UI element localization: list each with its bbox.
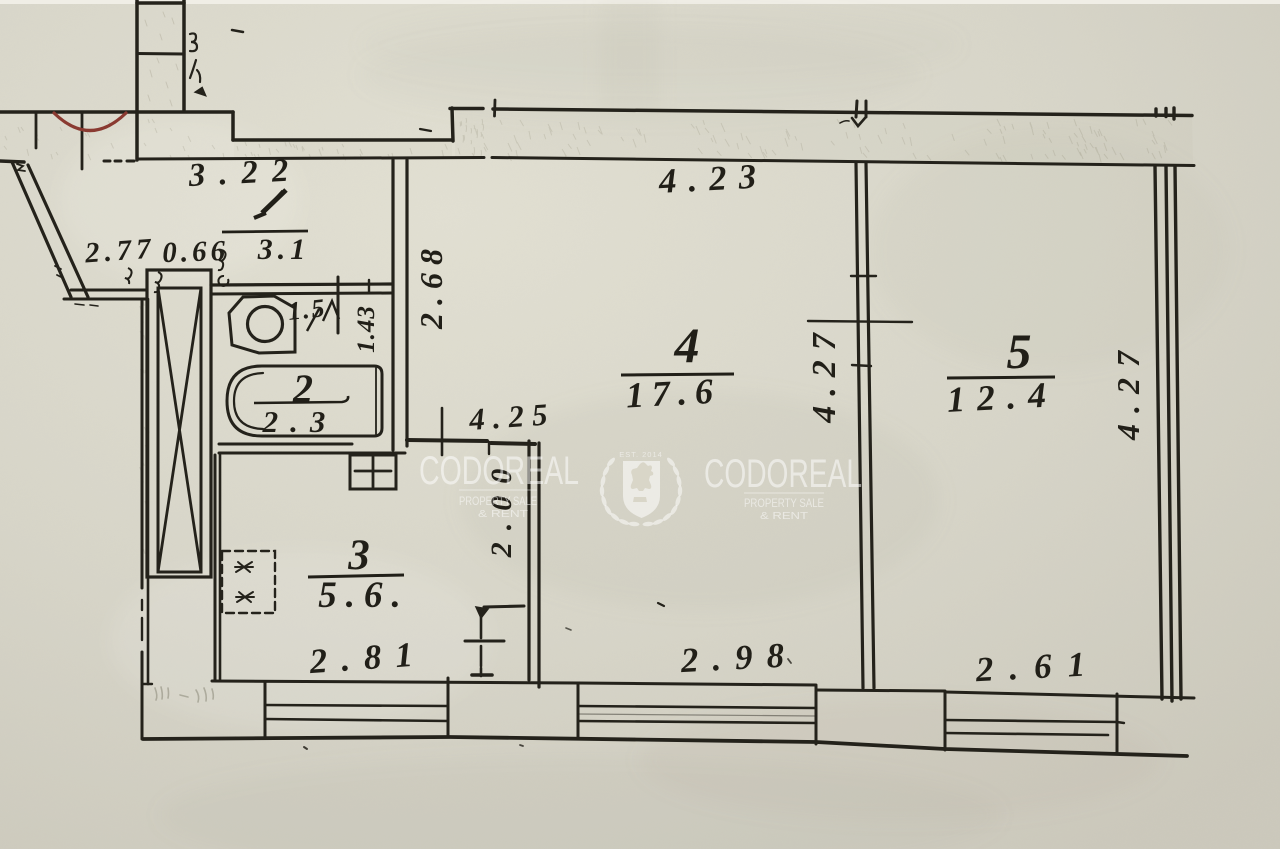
svg-text:CODOREAL: CODOREAL [419, 449, 579, 493]
svg-text:4: 4 [674, 317, 700, 373]
svg-text:2.98: 2.98 [679, 635, 799, 680]
svg-text:PROPERTY SALE: PROPERTY SALE [744, 496, 824, 510]
svg-text:PROPERTY SALE: PROPERTY SALE [459, 494, 537, 508]
svg-text:2.81: 2.81 [307, 634, 428, 681]
svg-text:5: 5 [1007, 323, 1032, 379]
svg-text:4.27: 4.27 [806, 323, 843, 424]
svg-text:2.61: 2.61 [974, 644, 1102, 690]
svg-text:1.5: 1.5 [286, 293, 327, 326]
svg-text:2.77: 2.77 [83, 233, 157, 270]
svg-text:CODOREAL: CODOREAL [704, 452, 862, 496]
svg-text:4.27: 4.27 [1110, 340, 1146, 441]
svg-text:5.6.: 5.6. [318, 575, 410, 616]
svg-text:17.6: 17.6 [625, 371, 722, 416]
svg-text:3.22: 3.22 [187, 152, 303, 194]
svg-text:0.66: 0.66 [162, 235, 230, 269]
svg-text:3.1: 3.1 [257, 233, 311, 266]
svg-text:2.68: 2.68 [413, 241, 449, 330]
svg-text:EST. 2014: EST. 2014 [619, 450, 663, 459]
svg-text:4.23: 4.23 [657, 156, 769, 201]
svg-text:2.3: 2.3 [262, 404, 338, 439]
svg-text:1.43: 1.43 [353, 305, 380, 353]
svg-text:4.25: 4.25 [467, 396, 556, 437]
svg-text:& RENT: & RENT [760, 510, 809, 522]
svg-text:12.4: 12.4 [946, 374, 1059, 420]
svg-text:& RENT: & RENT [478, 508, 529, 520]
svg-text:3: 3 [347, 532, 370, 579]
